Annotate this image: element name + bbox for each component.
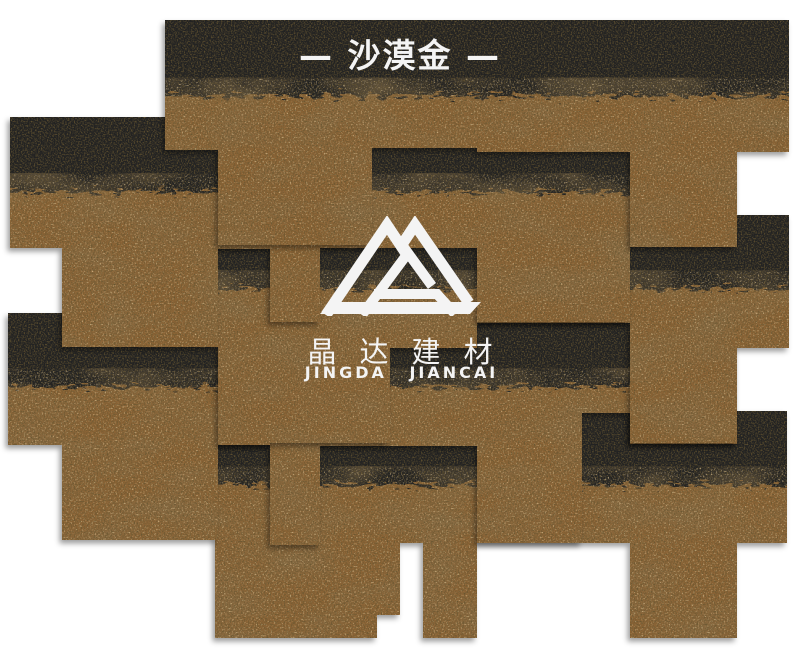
shingle-product-board: — 沙漠金 — 晶达建材 JINGDA JIANCAI [0, 0, 800, 660]
brand-name-en: JINGDA JIANCAI [0, 363, 800, 382]
jingda-logo-icon [317, 216, 483, 316]
product-title: — 沙漠金 — [0, 29, 800, 77]
